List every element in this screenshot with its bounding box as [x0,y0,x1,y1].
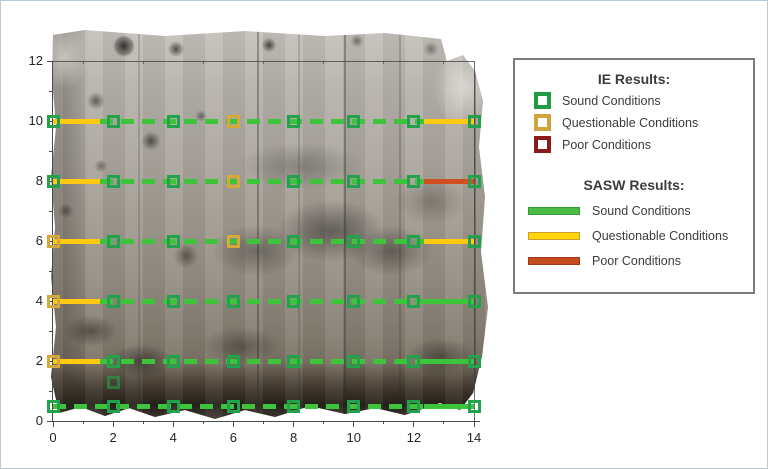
legend: IE Results: Sound Conditions Questionabl… [513,58,755,294]
legend-label-ie-sound: Sound Conditions [562,94,661,108]
ie-marker-sound [227,355,240,368]
y-tick-label: 8 [17,173,43,188]
ie-marker-sound [287,295,300,308]
y-minor-tick [49,211,52,212]
legend-item-sasw-poor: Poor Conditions [528,254,743,268]
ie-marker-sound [167,400,180,413]
ie-marker-sound [107,115,120,128]
ie-marker-sound [167,235,180,248]
x-minor-tick [383,421,384,424]
ie-marker-questionable [227,115,240,128]
x-major-tick [353,421,354,427]
ie-marker-sound [468,175,481,188]
legend-label-ie-poor: Poor Conditions [562,138,651,152]
sasw-segment-questionable [53,239,100,244]
ie-marker-sound [407,355,420,368]
ie-marker-sound [468,115,481,128]
ie-marker-sound [468,295,481,308]
ie-marker-sound [347,115,360,128]
ie-marker-sound [407,235,420,248]
legend-item-ie-poor: Poor Conditions [534,136,743,153]
ie-marker-sound [287,400,300,413]
x-major-tick [113,421,114,427]
sasw-questionable-bar-icon [528,232,580,240]
plot-area [53,61,474,421]
x-tick-label: 10 [339,430,369,445]
y-tick-label: 6 [17,233,43,248]
sasw-segment-questionable [53,119,100,124]
x-major-tick [53,421,54,427]
x-major-tick [293,421,294,427]
ie-marker-sound [47,175,60,188]
ie-marker-sound [407,400,420,413]
x-major-tick [474,421,475,427]
ie-marker-sound [407,295,420,308]
ie-marker-sound [347,295,360,308]
figure-canvas: 02468101214024681012 IE Results: Sound C… [0,0,768,469]
sasw-sound-bar-icon [528,207,580,215]
ie-marker-sound [107,355,120,368]
ie-marker-sound [227,400,240,413]
y-minor-tick [49,331,52,332]
sasw-poor-bar-icon [528,257,580,265]
ie-questionable-square-icon [534,114,551,131]
ie-marker-sound [407,175,420,188]
sasw-segment-questionable [53,179,100,184]
y-tick-label: 2 [17,353,43,368]
legend-label-sasw-poor: Poor Conditions [592,254,681,268]
x-minor-tick [263,421,264,424]
y-minor-tick [49,151,52,152]
legend-ie-title: IE Results: [525,71,743,87]
y-tick-label: 12 [17,53,43,68]
ie-marker-sound [347,400,360,413]
ie-marker-questionable [47,355,60,368]
ie-marker-sound [107,400,120,413]
ie-marker-sound [287,115,300,128]
sasw-segment-sound [100,299,425,304]
legend-label-sasw-sound: Sound Conditions [592,204,691,218]
y-minor-tick [49,271,52,272]
ie-marker-sound [47,400,60,413]
ie-marker-sound [287,355,300,368]
ie-sound-square-icon [534,92,551,109]
legend-label-sasw-questionable: Questionable Conditions [592,229,728,243]
ie-marker-sound [287,175,300,188]
ie-marker-sound [167,295,180,308]
x-minor-tick [83,421,84,424]
ie-marker-sound [107,376,120,389]
sasw-segment-questionable [53,299,100,304]
sasw-segment-sound [100,119,425,124]
x-minor-tick [443,421,444,424]
legend-item-ie-sound: Sound Conditions [534,92,743,109]
ie-marker-sound [347,175,360,188]
ie-marker-sound [468,235,481,248]
ie-marker-questionable [227,175,240,188]
ie-marker-sound [107,235,120,248]
x-minor-tick [203,421,204,424]
ie-marker-sound [107,175,120,188]
ie-marker-sound [167,175,180,188]
ie-marker-sound [47,115,60,128]
ie-marker-sound [167,355,180,368]
ie-marker-sound [287,235,300,248]
ie-poor-square-icon [534,136,551,153]
ie-marker-sound [227,295,240,308]
x-tick-label: 12 [399,430,429,445]
x-tick-label: 8 [279,430,309,445]
ie-marker-sound [468,355,481,368]
legend-item-sasw-sound: Sound Conditions [528,204,743,218]
ie-marker-questionable [47,235,60,248]
ie-marker-sound [468,400,481,413]
y-minor-tick [49,91,52,92]
ie-marker-questionable [47,295,60,308]
ie-marker-sound [347,355,360,368]
ie-marker-sound [407,115,420,128]
x-axis-line [52,421,480,422]
sasw-segment-sound [100,239,425,244]
ie-marker-sound [167,115,180,128]
legend-label-ie-questionable: Questionable Conditions [562,116,698,130]
x-major-tick [173,421,174,427]
y-tick-label: 10 [17,113,43,128]
x-major-tick [413,421,414,427]
sasw-segment-sound [100,179,425,184]
x-minor-tick [143,421,144,424]
y-tick-label: 4 [17,293,43,308]
x-minor-tick [323,421,324,424]
x-tick-label: 14 [459,430,489,445]
legend-sasw-title: SASW Results: [525,177,743,193]
ie-marker-sound [107,295,120,308]
legend-item-ie-questionable: Questionable Conditions [534,114,743,131]
x-tick-label: 6 [218,430,248,445]
x-tick-label: 2 [98,430,128,445]
y-tick-label: 0 [17,413,43,428]
x-major-tick [233,421,234,427]
x-tick-label: 0 [38,430,68,445]
sasw-segment-sound [100,359,425,364]
ie-marker-questionable [227,235,240,248]
y-minor-tick [49,391,52,392]
ie-marker-sound [347,235,360,248]
sasw-segment-questionable [53,359,100,364]
x-tick-label: 4 [158,430,188,445]
legend-item-sasw-questionable: Questionable Conditions [528,229,743,243]
